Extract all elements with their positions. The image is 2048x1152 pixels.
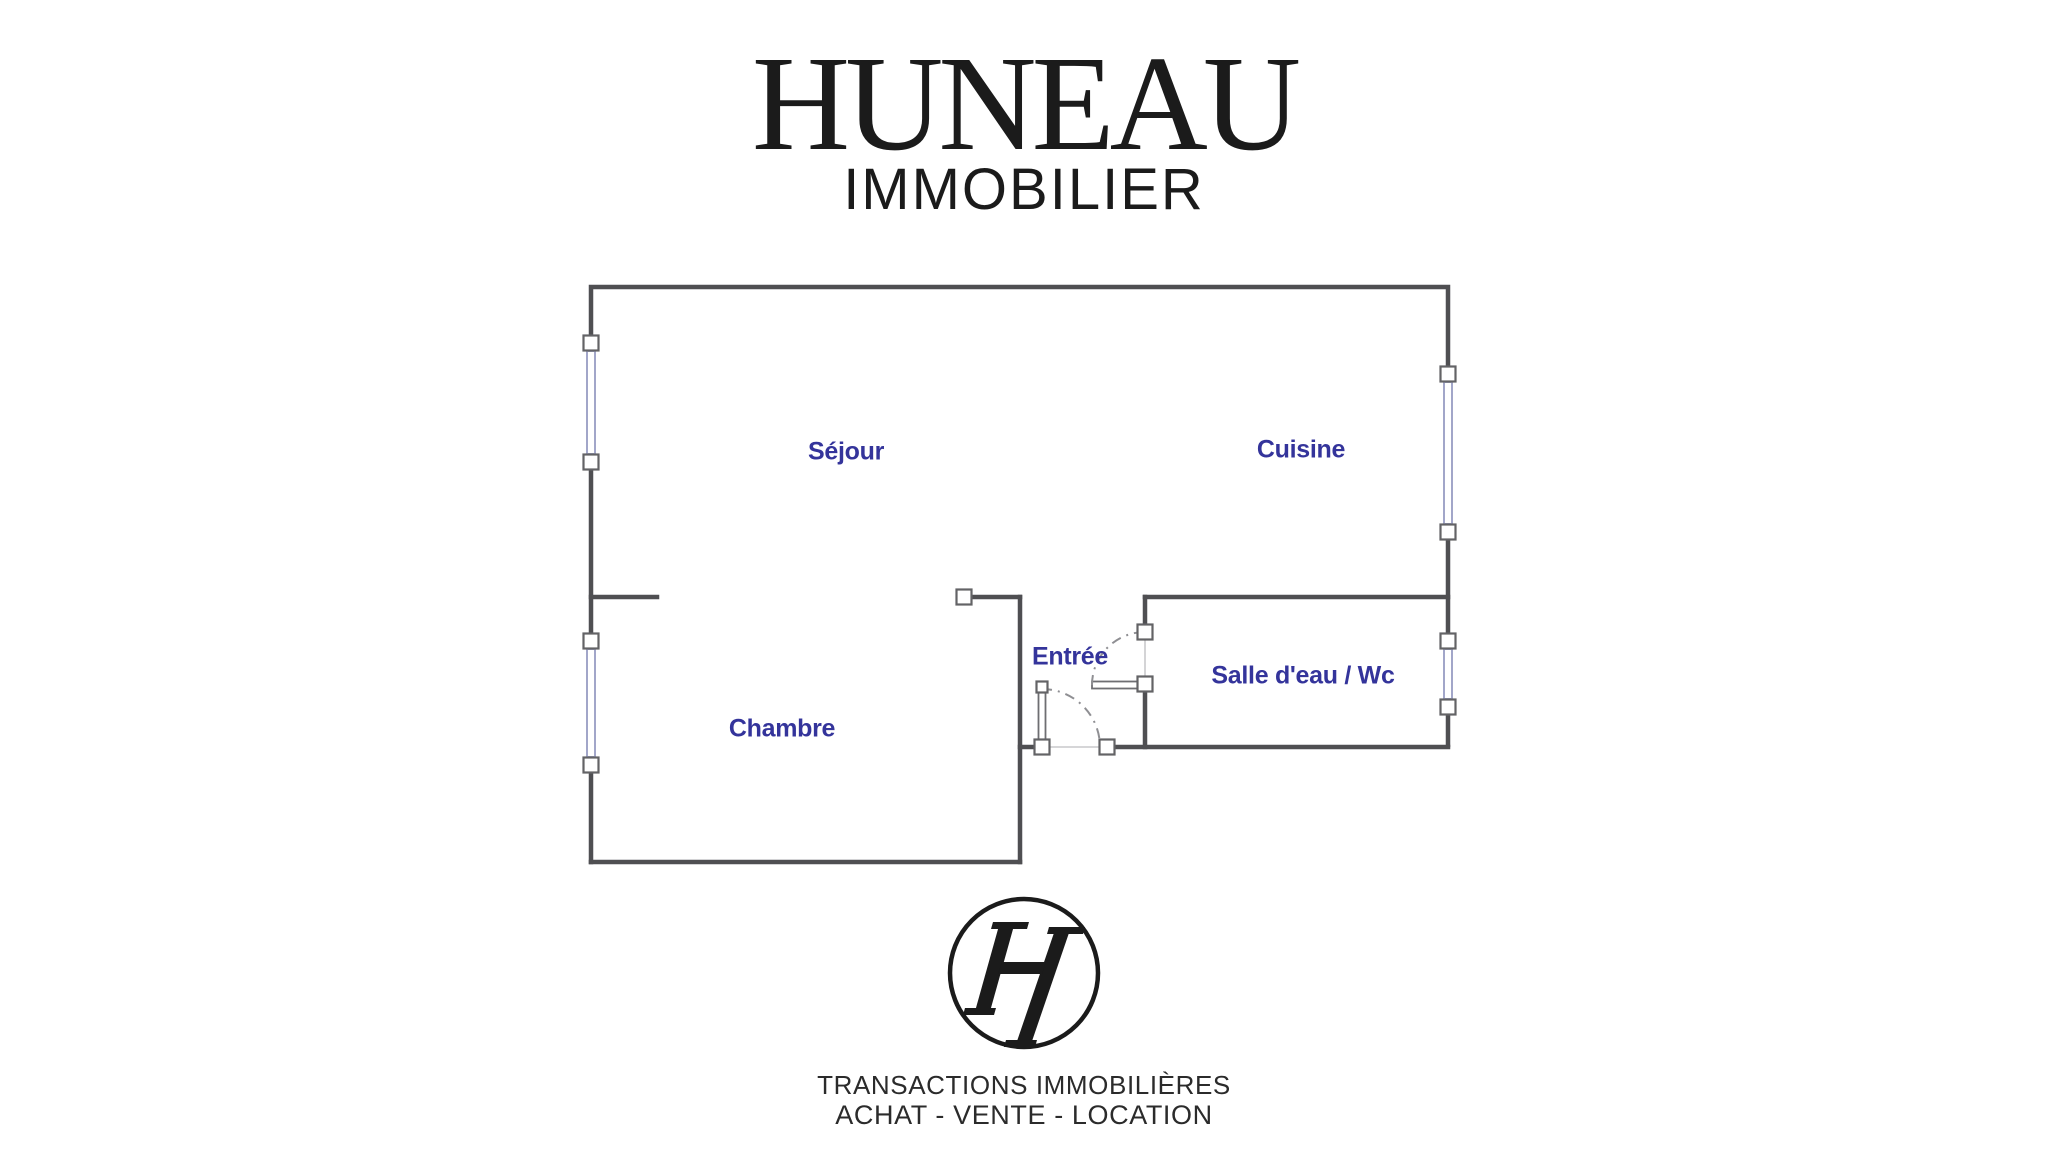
agency-monogram-logo	[0, 0, 2048, 1152]
footer-line-1: TRANSACTIONS IMMOBILIÈRES	[0, 1072, 2048, 1098]
footer-line-2: ACHAT - VENTE - LOCATION	[0, 1102, 2048, 1129]
page: HUNEAU IMMOBILIER	[0, 0, 2048, 1152]
monogram-h-icon	[963, 922, 1085, 1047]
